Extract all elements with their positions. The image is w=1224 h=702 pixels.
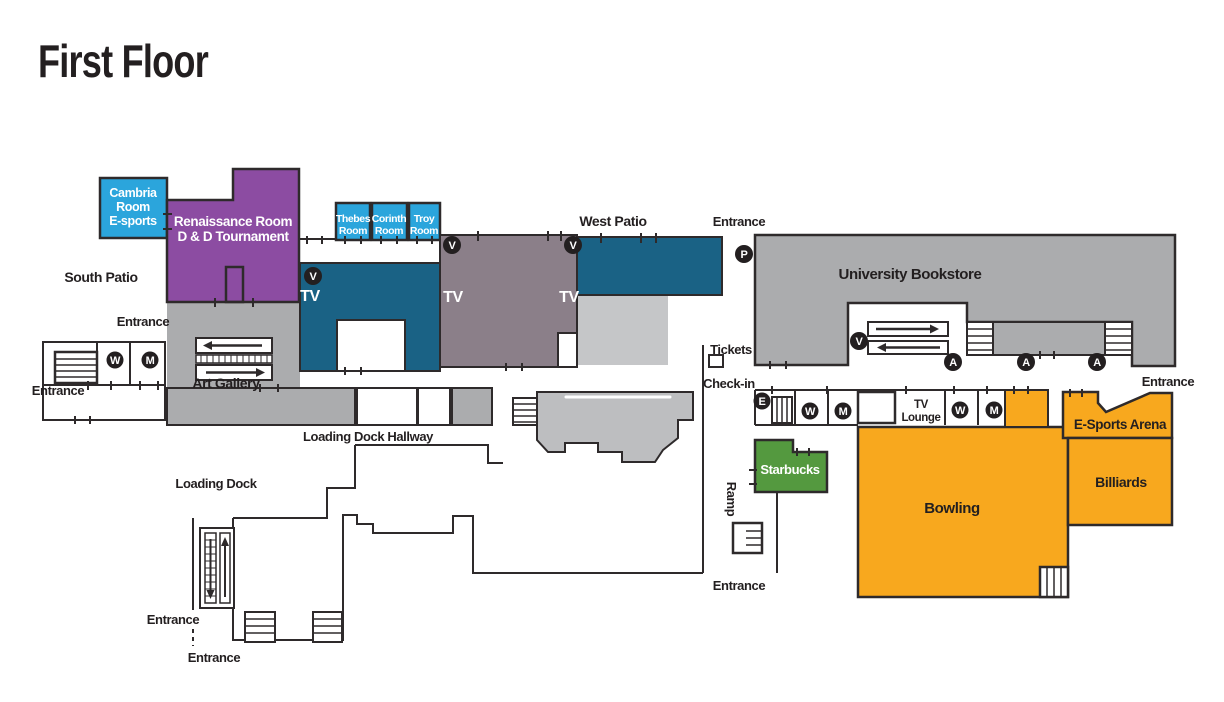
svg-text:W: W <box>110 355 121 367</box>
room-starbucks: Starbucks <box>755 440 827 492</box>
room-cambria-label: Cambria <box>109 186 158 200</box>
room-billiards: Billiards <box>1068 438 1172 525</box>
label-check-in: Check-in <box>703 376 755 391</box>
center-lounge-area <box>513 392 693 462</box>
svg-text:Room: Room <box>375 225 403 237</box>
icon-a: A <box>1088 353 1106 371</box>
svg-text:Lounge: Lounge <box>901 412 940 424</box>
stairs-bowling <box>1040 567 1068 597</box>
hallway-room <box>357 388 417 425</box>
icon-v: V <box>304 267 322 285</box>
svg-text:Thebes: Thebes <box>336 213 371 225</box>
stairs-bookstore-east <box>1105 322 1132 355</box>
svg-text:W: W <box>955 405 966 417</box>
tv-room-east <box>577 237 722 295</box>
room-tv-lounge: TV Lounge <box>901 399 940 424</box>
label-entrance-west: Entrance <box>32 383 85 398</box>
room-university-bookstore: University Bookstore <box>755 235 1175 366</box>
svg-text:V: V <box>310 271 318 283</box>
room-renaissance: Renaissance Room D & D Tournament <box>167 169 299 302</box>
stairs-west-entrance <box>55 352 97 383</box>
svg-text:M: M <box>990 405 999 417</box>
icon-a: A <box>944 353 962 371</box>
label-entrance-gallery: Entrance <box>117 314 170 329</box>
room-art-gallery-label: Art Gallery <box>192 375 260 391</box>
icon-m: M <box>142 352 159 369</box>
svg-text:W: W <box>805 406 816 418</box>
tv-label: TV <box>300 288 320 305</box>
first-floor-map: First Floor Cambria Room E-sports Renais… <box>0 0 1224 702</box>
icon-w: W <box>952 402 969 419</box>
stairs-bookstore-west <box>967 322 993 355</box>
svg-text:V: V <box>449 240 457 252</box>
room-esports-arena-label: E-Sports Arena <box>1074 417 1167 432</box>
svg-text:E-sports: E-sports <box>109 214 157 228</box>
svg-text:V: V <box>856 336 864 348</box>
svg-text:A: A <box>949 357 957 369</box>
label-loading-dock-hallway: Loading Dock Hallway <box>303 429 434 444</box>
tv-label: TV <box>559 289 579 306</box>
icon-v: V <box>850 332 868 350</box>
label-tickets: Tickets <box>710 342 752 357</box>
label-ramp: Ramp <box>724 482 739 517</box>
room-esports-arena: E-Sports Arena <box>1063 392 1172 438</box>
floor-plan-page: First Floor Cambria Room E-sports Renais… <box>0 0 1224 702</box>
svg-text:V: V <box>570 240 578 252</box>
label-entrance-north: Entrance <box>713 214 766 229</box>
icon-v: V <box>564 236 582 254</box>
icon-w: W <box>107 352 124 369</box>
stairs-checkin <box>772 397 792 423</box>
checkin-room <box>858 392 895 423</box>
room-corinth: Corinth Room <box>372 203 407 240</box>
escalator-bookstore <box>868 322 948 354</box>
room-renaissance-label: Renaissance Room <box>174 214 293 229</box>
label-west-patio: West Patio <box>579 213 646 229</box>
icon-v: V <box>443 236 461 254</box>
icon-e: E <box>754 393 771 410</box>
stairs-south-b <box>313 612 342 642</box>
svg-text:Corinth: Corinth <box>372 213 407 225</box>
escalator-southwest <box>200 528 234 608</box>
icon-m: M <box>986 402 1003 419</box>
svg-text:M: M <box>839 406 848 418</box>
svg-text:TV: TV <box>914 399 929 411</box>
label-entrance-southwest-a: Entrance <box>147 612 200 627</box>
escalator-art-gallery <box>196 338 272 380</box>
svg-text:Troy: Troy <box>414 213 435 225</box>
label-entrance-southwest-b: Entrance <box>188 650 241 665</box>
bookstore-inner-room <box>993 322 1105 355</box>
label-south-patio: South Patio <box>64 269 137 285</box>
label-loading-dock: Loading Dock <box>175 476 257 491</box>
room-bowling-label: Bowling <box>924 500 980 517</box>
svg-text:Room: Room <box>116 200 150 214</box>
stairs-center <box>513 398 537 425</box>
icon-w: W <box>802 403 819 420</box>
icon-a: A <box>1017 353 1035 371</box>
svg-text:A: A <box>1093 357 1101 369</box>
icon-p: P <box>735 245 753 263</box>
room-starbucks-label: Starbucks <box>760 462 819 477</box>
svg-text:A: A <box>1022 357 1030 369</box>
label-entrance-ramp: Entrance <box>713 578 766 593</box>
stairs-south-a <box>245 612 275 642</box>
hallway-room <box>418 388 450 425</box>
room-troy: Troy Room <box>409 203 440 240</box>
orange-annex-room <box>1005 390 1048 427</box>
room-billiards-label: Billiards <box>1095 474 1147 490</box>
west-patio-lower-area <box>577 295 668 365</box>
tv-label: TV <box>443 289 463 306</box>
room-university-bookstore-label: University Bookstore <box>839 266 982 283</box>
svg-text:E: E <box>759 396 766 408</box>
svg-text:Room: Room <box>410 225 438 237</box>
icon-m: M <box>835 403 852 420</box>
label-entrance-east: Entrance <box>1142 374 1195 389</box>
hallway-room <box>452 388 492 425</box>
stairs-ramp <box>733 523 762 553</box>
svg-text:P: P <box>741 249 748 261</box>
room-bowling: Bowling <box>858 427 1068 597</box>
svg-text:D & D Tournament: D & D Tournament <box>177 229 289 244</box>
svg-text:Room: Room <box>339 225 367 237</box>
svg-text:M: M <box>146 355 155 367</box>
page-title: First Floor <box>38 35 209 87</box>
room-thebes: Thebes Room <box>336 203 371 240</box>
room-cambria: Cambria Room E-sports <box>100 178 167 238</box>
